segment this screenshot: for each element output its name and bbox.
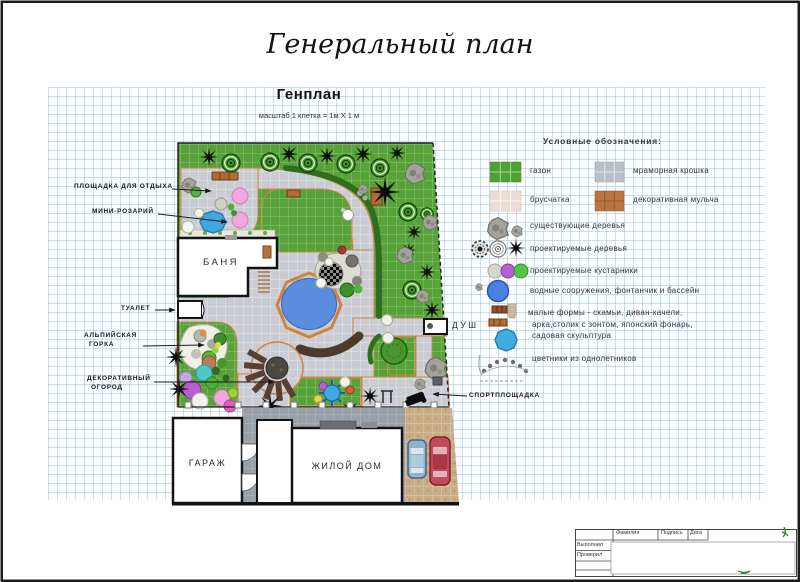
title-block xyxy=(576,530,797,577)
legend-label-planned-trees: проектируемые деревья xyxy=(530,244,627,253)
annex-building xyxy=(257,420,292,503)
legend-icon-small-forms xyxy=(489,304,517,351)
label-sport-ground: СПОРТПЛОЩАДКА xyxy=(469,392,540,399)
property-line xyxy=(172,502,459,506)
label-shower: ДУШ xyxy=(452,320,479,330)
label-rest-area: ПЛОЩАДКА ДЛЯ ОТДЫХА xyxy=(74,183,173,190)
page-title: Генеральный план xyxy=(0,29,800,60)
label-alpine-hill: АЛЬПИЙСКАЯ ГОРКА xyxy=(84,332,137,348)
plan-heading: Генплан xyxy=(234,86,384,103)
legend-title: Условные обозначения: xyxy=(543,136,662,146)
document-page: Генеральный план Генплан масштаб 1 клетк… xyxy=(0,0,800,582)
legend-swatch-marble xyxy=(595,162,624,182)
legend-label-small-forms-3: садовая скульптура xyxy=(532,331,611,340)
label-house: ЖИЛОЙ ДОМ xyxy=(292,461,402,471)
label-toilet: ТУАЛЕТ xyxy=(121,305,150,312)
legend-swatch-mulch xyxy=(595,191,624,211)
legend-icon-existing-trees xyxy=(488,218,523,240)
legend-label-lawn: газон xyxy=(530,166,551,175)
legend-label-planned-shrubs: проектируемые кустарники xyxy=(530,266,638,275)
titleblock-signature: Подпись xyxy=(661,530,683,536)
car-red xyxy=(430,437,450,485)
label-mini-rosary: МИНИ-РОЗАРИЙ xyxy=(92,208,154,215)
legend-label-small-forms-1: малые формы - скамьи, диван-качели, xyxy=(528,308,683,317)
legend-icon-water xyxy=(475,281,508,302)
legend-icon-flowerbeds xyxy=(479,355,528,381)
legend-swatch-lawn xyxy=(490,162,521,182)
legend-label-annual-flowers: цветники из однолетников xyxy=(532,354,637,363)
legend-label-mulch: декоративная мульча xyxy=(633,195,719,204)
titleblock-checked: Проверил xyxy=(577,552,602,558)
titleblock-date: Дата xyxy=(690,530,702,536)
legend-icon-shrubs xyxy=(488,264,528,278)
label-garage: ГАРАЖ xyxy=(173,458,242,468)
label-bathhouse: БАНЯ xyxy=(190,257,252,268)
titleblock-surname: Фамилия xyxy=(616,530,639,536)
legend-swatch-pavers xyxy=(490,191,521,211)
legend-label-existing-trees: существующие деревья xyxy=(530,221,625,230)
legend-label-water: водные сооружения, фонтанчик и бассейн xyxy=(530,286,699,295)
legend-label-marble: мраморная крошка xyxy=(633,166,709,175)
car-blue xyxy=(408,440,426,478)
label-decorative-garden: ДЕКОРАТИВНЫЙ ОГОРОД xyxy=(87,375,151,391)
legend-label-pavers: брусчатка xyxy=(530,195,570,204)
titleblock-executed: Выполнил xyxy=(577,542,603,548)
legend-label-small-forms-2: арка,столик с зонтом, японский фонарь, xyxy=(532,320,693,329)
shower-building xyxy=(424,319,447,334)
legend-icon-planned-trees xyxy=(472,239,525,258)
toilet-building xyxy=(178,301,204,318)
scale-note: масштаб 1 клетка = 1м X 1 м xyxy=(224,111,394,120)
